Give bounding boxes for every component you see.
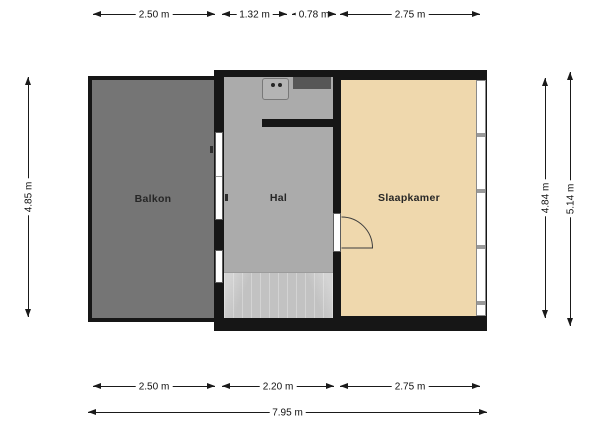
dimension-bottom-slaapkamer: 2.75 m xyxy=(340,386,480,387)
dimension-label: 2.50 m xyxy=(136,9,173,20)
dimension-top-hal-left: 1.32 m xyxy=(222,14,287,15)
dimension-top-balkon: 2.50 m xyxy=(93,14,215,15)
duct-shaft xyxy=(293,77,331,89)
dimension-top-slaapkamer: 2.75 m xyxy=(340,14,480,15)
balcony-door-icon xyxy=(215,132,223,220)
room-slaapkamer: Slaapkamer xyxy=(341,80,477,316)
door-handle-icon xyxy=(225,194,228,201)
room-label-slaapkamer: Slaapkamer xyxy=(378,192,440,204)
door-handle-icon xyxy=(210,146,213,153)
dimension-top-shaft: 0.78 m xyxy=(292,14,336,15)
dimension-label: 4.85 m xyxy=(23,179,34,216)
dimension-label: 2.75 m xyxy=(392,381,429,392)
dimension-label: 4.84 m xyxy=(540,180,551,217)
room-label-hal: Hal xyxy=(270,192,287,204)
dimension-label: 1.32 m xyxy=(236,9,273,20)
dimension-bottom-balkon: 2.50 m xyxy=(93,386,215,387)
dimension-label: 5.14 m xyxy=(565,181,576,218)
dimension-label: 2.20 m xyxy=(260,381,297,392)
floorplan-canvas: Balkon Hal Slaapkamer 2.50 m 1.32 m xyxy=(0,0,600,424)
dimension-label: 2.50 m xyxy=(136,381,173,392)
boiler-unit-icon xyxy=(262,78,289,100)
boiler-knob-icon xyxy=(278,83,282,87)
dimension-left-balkon: 4.85 m xyxy=(28,77,29,317)
building-walls: Hal Slaapkamer xyxy=(214,70,487,331)
dimension-bottom-total: 7.95 m xyxy=(88,412,487,413)
boiler-knob-icon xyxy=(271,83,275,87)
dimension-right-outer: 5.14 m xyxy=(570,72,571,326)
interior-wall xyxy=(262,119,333,127)
slaapkamer-door-icon xyxy=(333,213,341,252)
slaapkamer-window-icon xyxy=(476,80,486,316)
dimension-label: 0.78 m xyxy=(296,9,333,20)
dimension-label: 2.75 m xyxy=(392,9,429,20)
stairs-icon xyxy=(224,272,333,318)
hal-window-icon xyxy=(215,250,223,283)
dimension-right-inner: 4.84 m xyxy=(545,78,546,318)
room-balkon: Balkon xyxy=(88,76,218,322)
dimension-label: 7.95 m xyxy=(269,407,306,418)
dimension-bottom-hal: 2.20 m xyxy=(222,386,334,387)
room-label-balkon: Balkon xyxy=(135,193,172,205)
